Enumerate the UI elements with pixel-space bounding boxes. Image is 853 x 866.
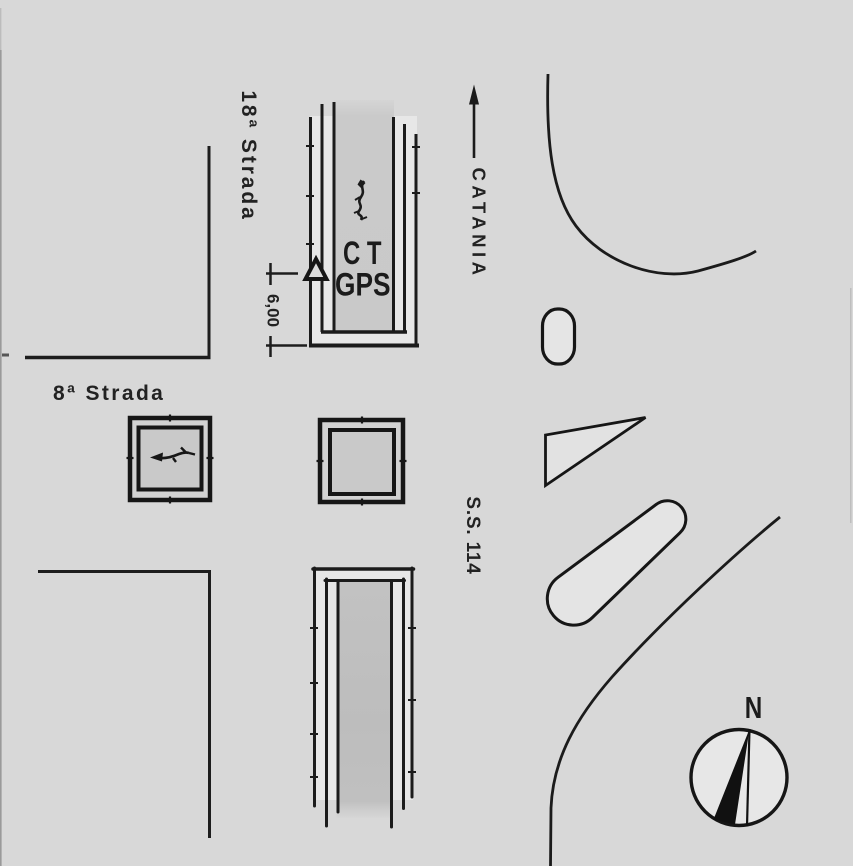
svg-text:18ª Strada: 18ª Strada	[237, 90, 260, 221]
svg-text:8ª Strada: 8ª Strada	[53, 382, 165, 405]
svg-text:GPS: GPS	[335, 267, 391, 303]
svg-text:6,00: 6,00	[263, 294, 282, 327]
svg-text:N: N	[745, 690, 763, 725]
svg-text:CATANIA: CATANIA	[468, 168, 489, 280]
svg-text:S.S. 114: S.S. 114	[462, 496, 483, 574]
